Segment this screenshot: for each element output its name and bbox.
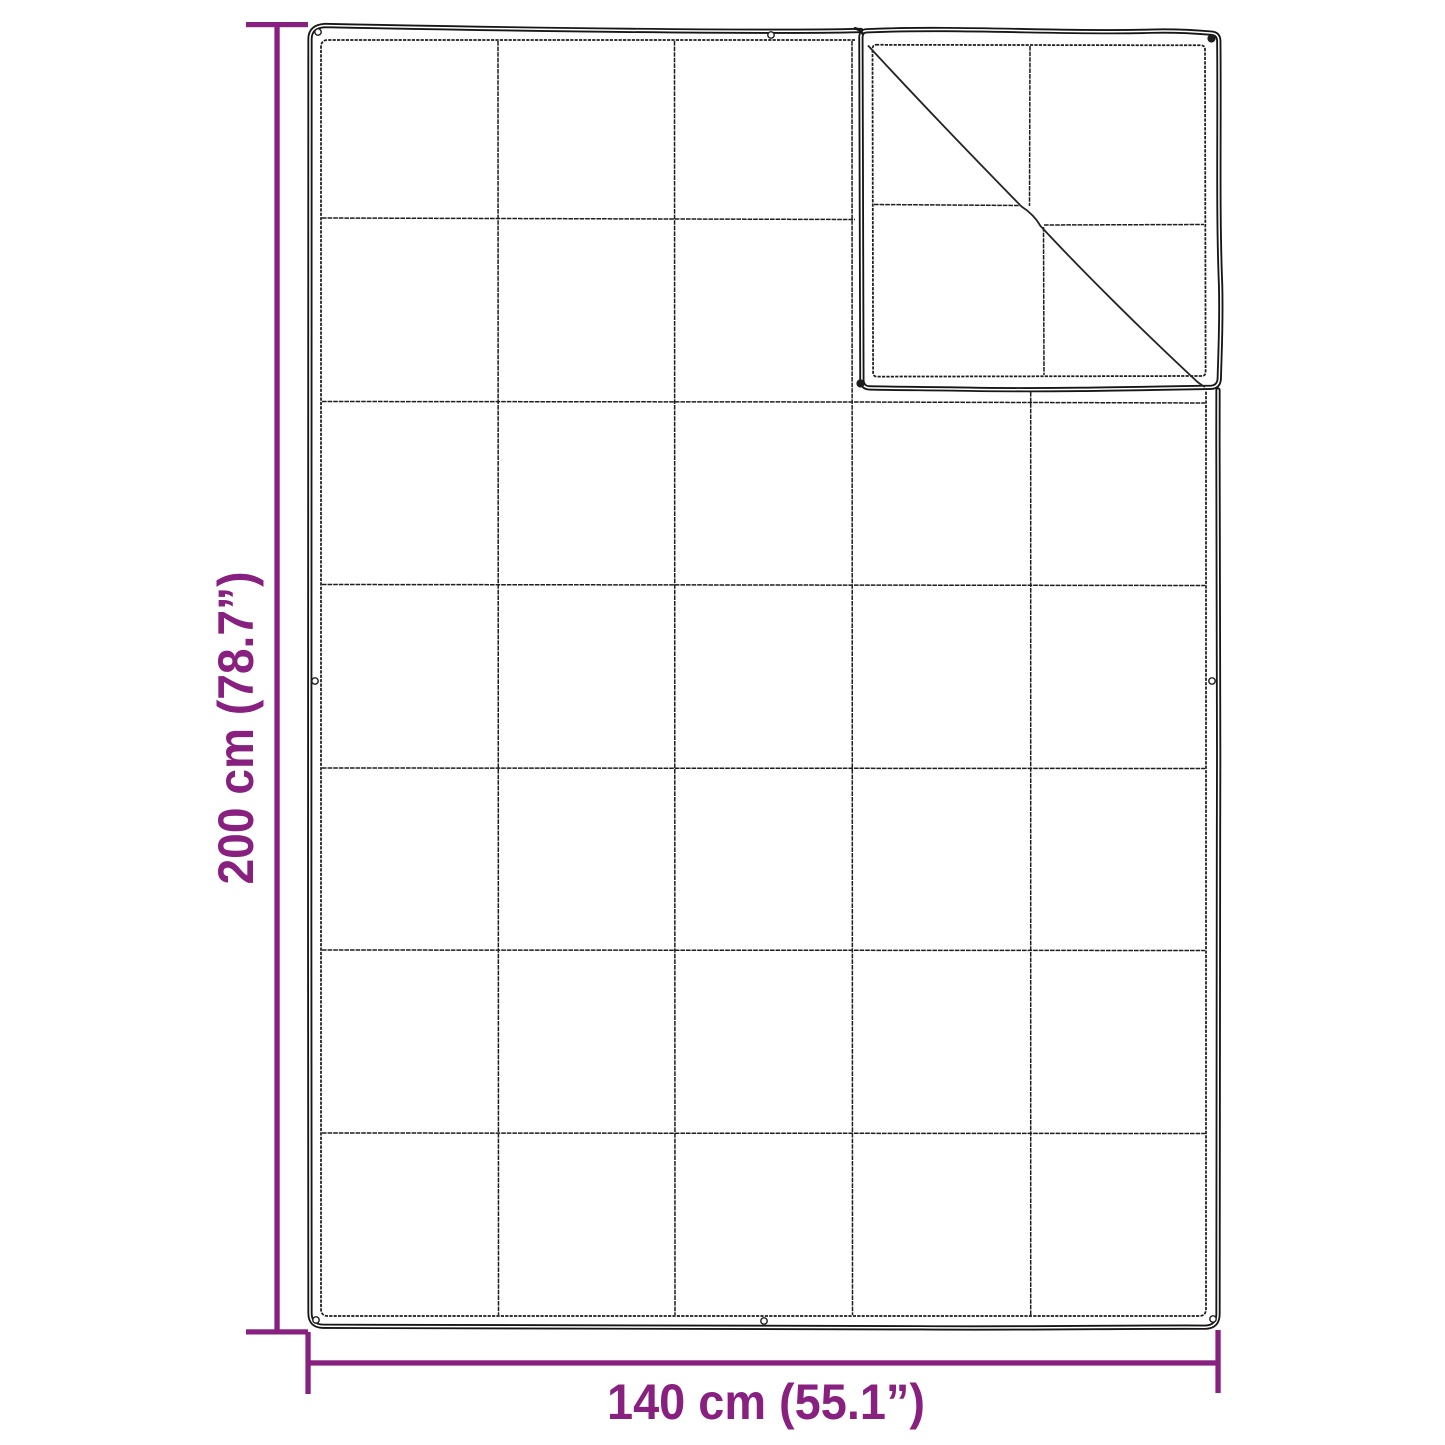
svg-text:200 cm (78.7”): 200 cm (78.7”): [208, 572, 264, 885]
svg-text:140 cm (55.1”): 140 cm (55.1”): [607, 1374, 925, 1430]
